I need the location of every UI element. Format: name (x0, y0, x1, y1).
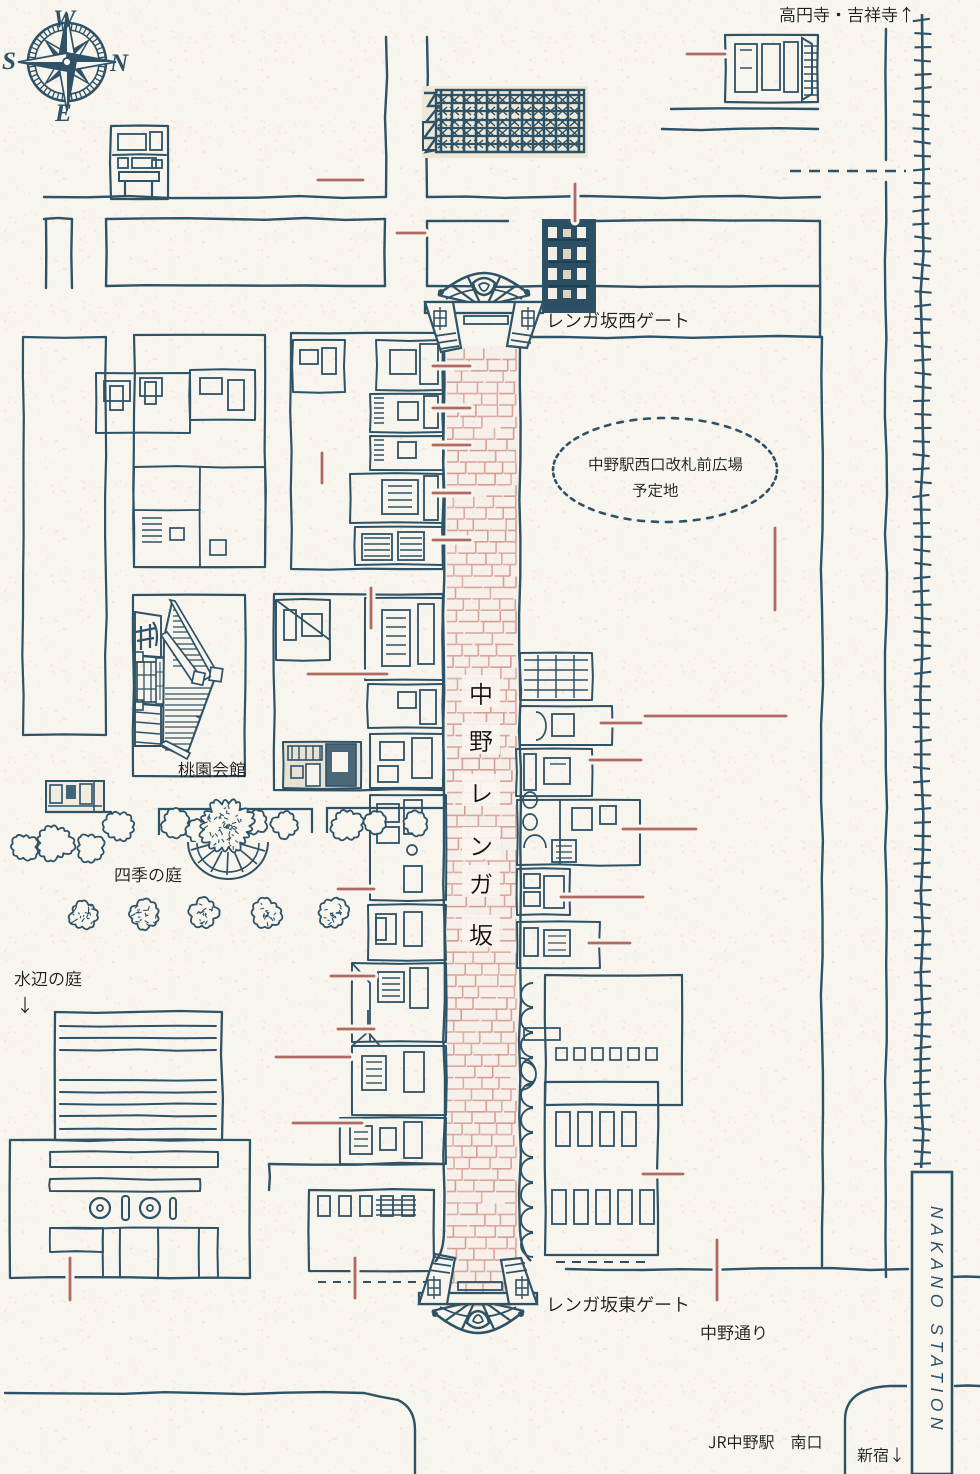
svg-text:NAKANO STATION: NAKANO STATION (927, 1206, 947, 1435)
svg-text:N: N (109, 50, 129, 77)
svg-text:S: S (2, 48, 16, 75)
svg-text:E: E (54, 100, 72, 127)
svg-text:W: W (53, 6, 77, 33)
